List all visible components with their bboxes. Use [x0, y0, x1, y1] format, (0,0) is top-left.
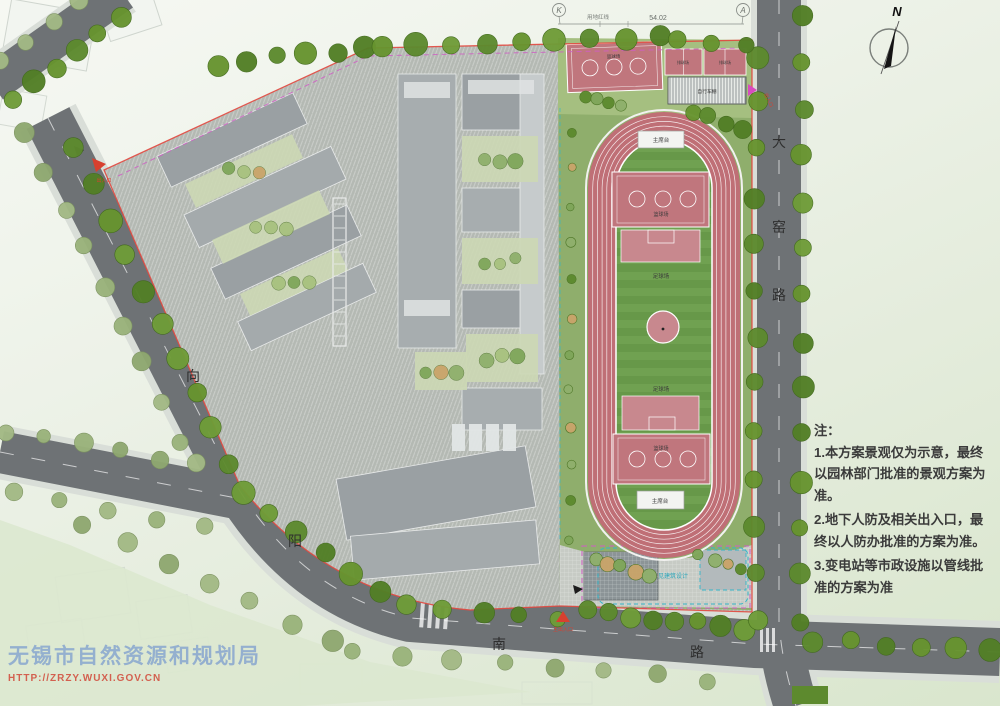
west-road-char-1: 向 [186, 369, 200, 385]
basketball-court-top [566, 41, 663, 92]
survey-dimension: 54.02 [649, 15, 667, 22]
survey-annotation: K A 用地红线 54.02 [553, 4, 750, 28]
note-item-1: 1.本方案景观仅为示意，最终以园林部门批准的景观方案为准。 [814, 442, 994, 507]
west-entrance-label: 出入口 [96, 177, 111, 184]
east-road-char-3: 路 [772, 288, 786, 304]
south-road-char-1: 南 [492, 637, 506, 653]
plan-notes: 注： 1.本方案景观仅为示意，最终以园林部门批准的景观方案为准。 2.地下人防及… [814, 420, 994, 601]
east-road-char-1: 大 [772, 135, 786, 151]
stand-top-label: 主席台 [653, 136, 670, 144]
south-entrance-label: 主出入口 [553, 626, 573, 633]
watermark: 无锡市自然资源和规划局 HTTP://ZRZY.WUXI.GOV.CN [8, 640, 261, 684]
basketball-court-north [612, 172, 709, 227]
north-label: N [892, 4, 902, 19]
note-item-3: 3.变电站等市政设施以管线批准的方案为准 [814, 555, 994, 598]
west-road-char-2: 阳 [288, 534, 302, 550]
site-plan-canvas: 见建筑设计 主席台 篮球场 足球场 足球场 篮球场 主席台 [0, 0, 1000, 706]
notes-title: 注： [814, 420, 994, 442]
survey-redline-label: 用地红线 [587, 13, 610, 21]
watermark-url: HTTP://ZRZY.WUXI.GOV.CN [8, 673, 261, 684]
east-road-char-2: 窑 [772, 219, 786, 236]
basketball-north-label: 篮球场 [653, 211, 668, 218]
hedge [792, 686, 828, 704]
bike-shed-label: 自行车棚 [697, 88, 716, 95]
survey-marker-k: K [556, 6, 562, 15]
soccer-lower-label: 足球场 [653, 385, 670, 393]
soccer-upper-label: 足球场 [653, 272, 670, 280]
note-item-2: 2.地下人防及相关出入口，最终以人防办批准的方案为准。 [814, 509, 994, 552]
survey-marker-a: A [739, 6, 745, 15]
north-arrow-icon: N [870, 4, 908, 74]
plaza-design-note: 见建筑设计 [658, 572, 688, 580]
watermark-agency: 无锡市自然资源和规划局 [8, 640, 261, 670]
south-road-char-2: 路 [690, 645, 704, 661]
volleyball-right-label: 排球场 [719, 59, 731, 65]
center-circle [647, 311, 679, 343]
volleyball-left-label: 排球场 [677, 59, 689, 65]
basketball-south-label: 篮球场 [653, 445, 668, 452]
stand-bottom-label: 主席台 [652, 497, 669, 505]
basketball-court-south [613, 434, 710, 484]
